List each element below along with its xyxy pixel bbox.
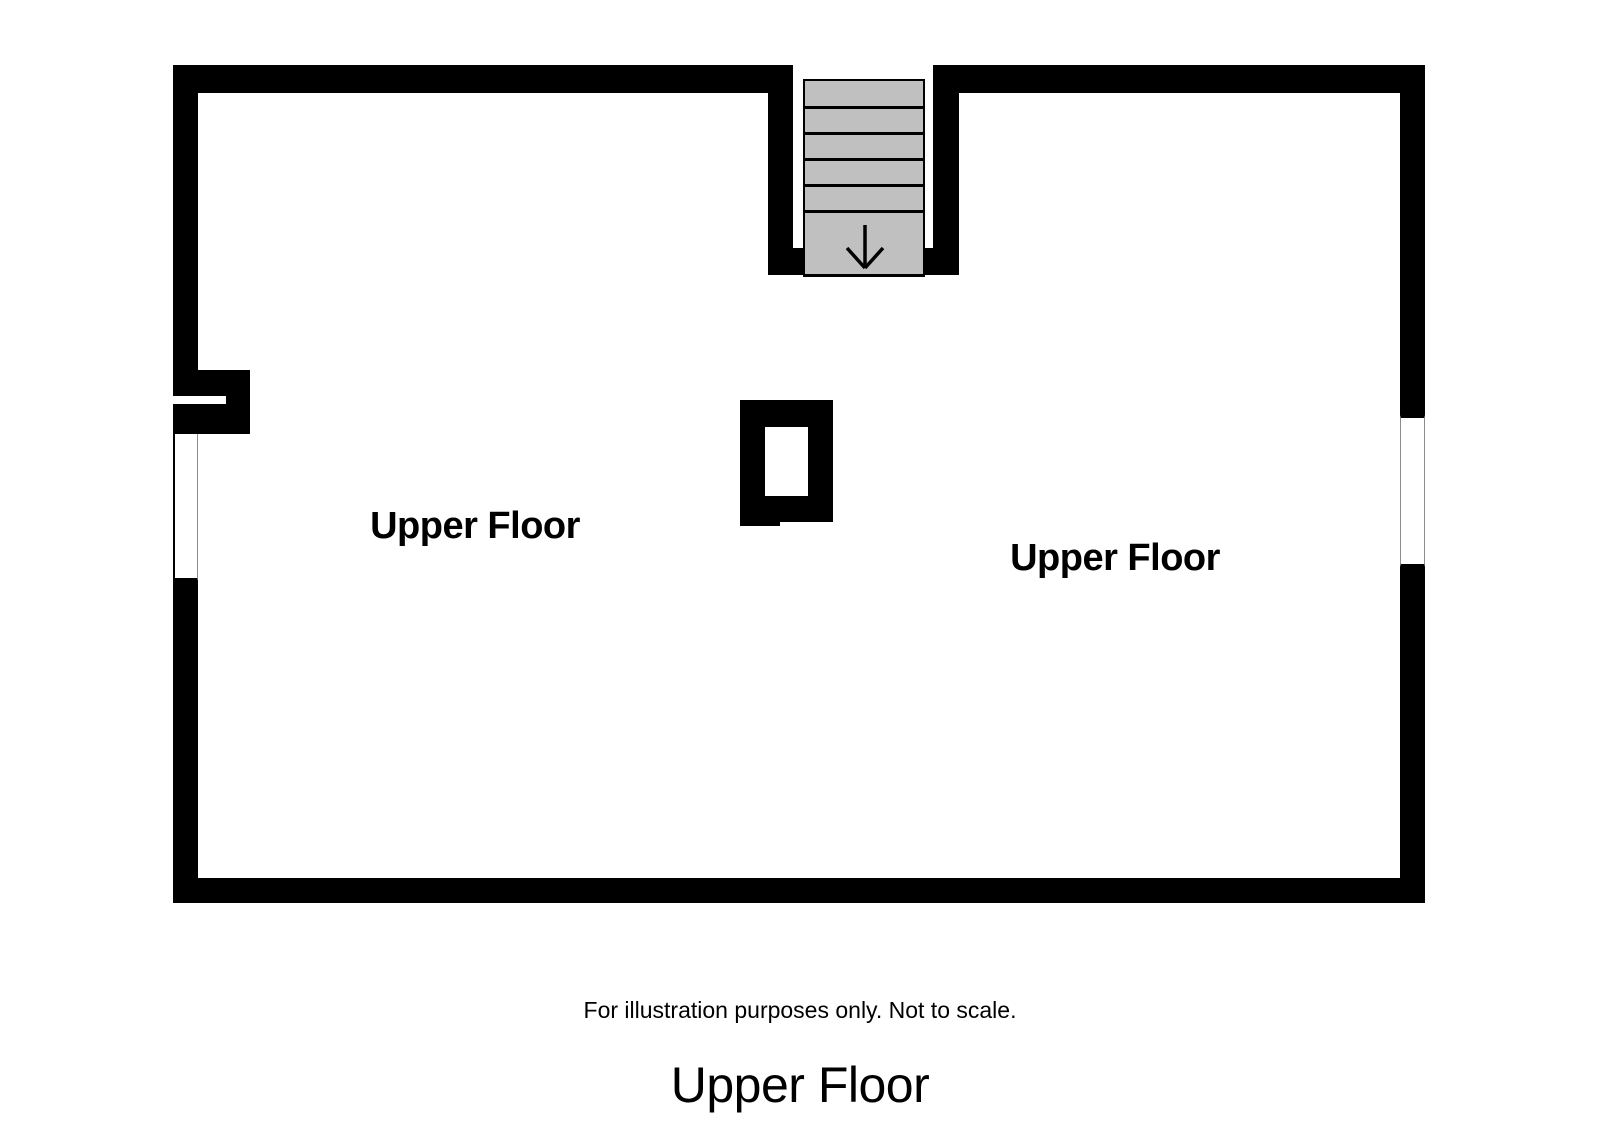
- page-title: Upper Floor: [0, 1054, 1600, 1116]
- stairs-down-arrow-icon: [843, 223, 887, 273]
- disclaimer-text: For illustration purposes only. Not to s…: [0, 995, 1600, 1025]
- stairwell-wall-left-foot: [793, 248, 803, 275]
- room-label-upper-floor-left: Upper Floor: [325, 506, 625, 546]
- staircase: [803, 79, 925, 277]
- right-wall-upper-segment: [1400, 65, 1425, 415]
- stairwell-wall-right: [933, 65, 959, 275]
- stair-tread-line: [803, 132, 925, 135]
- chimney: [740, 400, 833, 522]
- room-label-upper-floor-right: Upper Floor: [965, 538, 1265, 578]
- left-wall-upper-segment: [173, 65, 198, 396]
- stair-tread-line: [803, 106, 925, 109]
- left-wall-lower-segment: [173, 581, 198, 878]
- right-wall-lower-segment: [1400, 567, 1425, 878]
- bottom-wall: [173, 878, 1425, 903]
- stairwell-wall-left: [768, 65, 793, 275]
- stair-tread-line: [803, 184, 925, 187]
- top-wall-right-segment: [933, 65, 1425, 93]
- window-left-wall: [173, 434, 198, 581]
- chimney-flue: [765, 427, 808, 496]
- stair-tread-line: [803, 210, 925, 213]
- top-wall-left-segment: [173, 65, 793, 93]
- chimney-base-tab: [740, 522, 780, 526]
- stair-tread-line: [803, 158, 925, 161]
- floorplan-canvas: Upper Floor Upper Floor For illustration…: [0, 0, 1600, 1131]
- window-right-wall: [1400, 415, 1425, 567]
- left-door-jamb-lower: [173, 404, 250, 434]
